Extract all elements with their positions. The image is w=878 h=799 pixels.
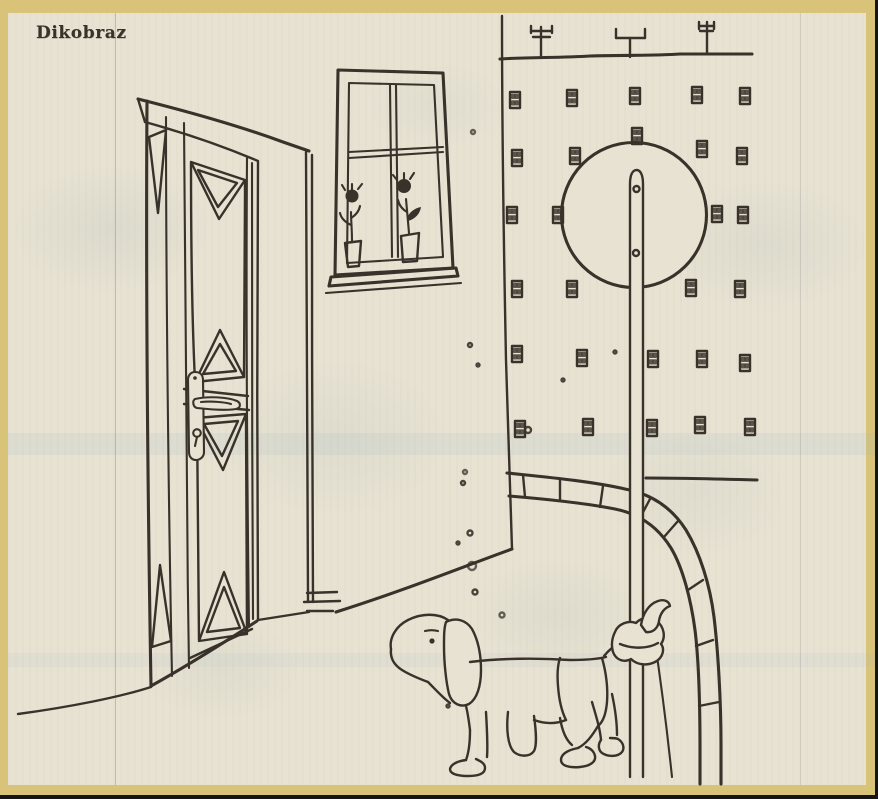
- door: [138, 99, 313, 686]
- sign-pole: [630, 170, 643, 777]
- dog-back: [470, 657, 606, 662]
- flower-pot-left: [340, 184, 362, 267]
- dog-tail-tip: [641, 600, 670, 632]
- wall-corner: [18, 16, 512, 714]
- tv-antenna-icon: [699, 22, 714, 54]
- dog-rear-paw: [561, 747, 595, 767]
- grass-hatch-marks: [304, 592, 340, 611]
- dog-front-paw: [450, 759, 485, 776]
- dog-ear: [444, 620, 481, 706]
- facade-base-line: [646, 478, 757, 480]
- cartoon-illustration: [0, 0, 878, 799]
- roofline: [500, 54, 752, 59]
- dog: [391, 615, 624, 776]
- tv-antenna-icon: [531, 26, 552, 57]
- door-leaf-edge: [147, 101, 151, 686]
- scan-edge: [0, 795, 878, 799]
- dog-eye: [429, 638, 434, 643]
- tv-antenna-icon: [616, 29, 645, 57]
- window-mullion: [390, 85, 392, 257]
- dog-head: [391, 615, 448, 649]
- floor-line: [336, 549, 512, 612]
- scan-border: Dikobraz: [0, 0, 878, 799]
- caption: Dikobraz: [36, 23, 127, 43]
- window-frame: [326, 70, 461, 293]
- floor-line-left: [18, 687, 151, 714]
- door-frame-post: [306, 152, 308, 601]
